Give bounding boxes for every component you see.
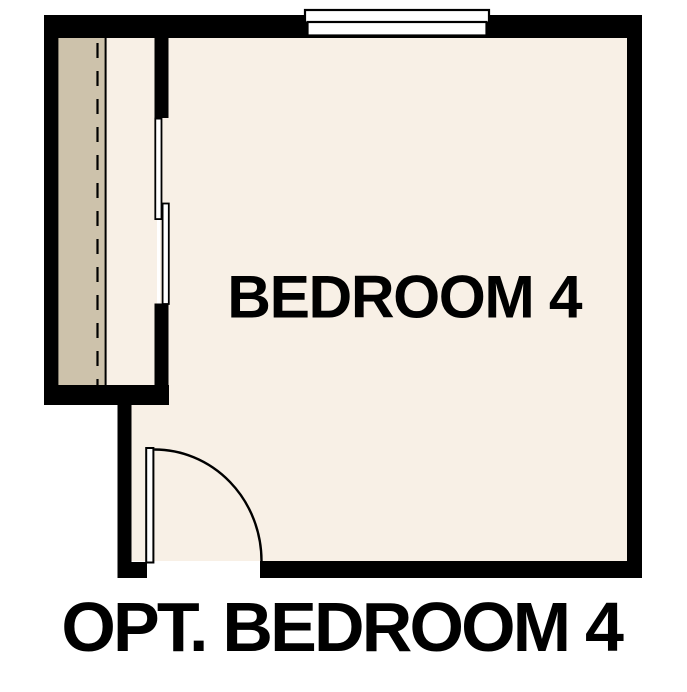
svg-text:BEDROOM 4: BEDROOM 4 [227, 263, 583, 331]
svg-text:OPT. BEDROOM 4: OPT. BEDROOM 4 [61, 588, 624, 666]
